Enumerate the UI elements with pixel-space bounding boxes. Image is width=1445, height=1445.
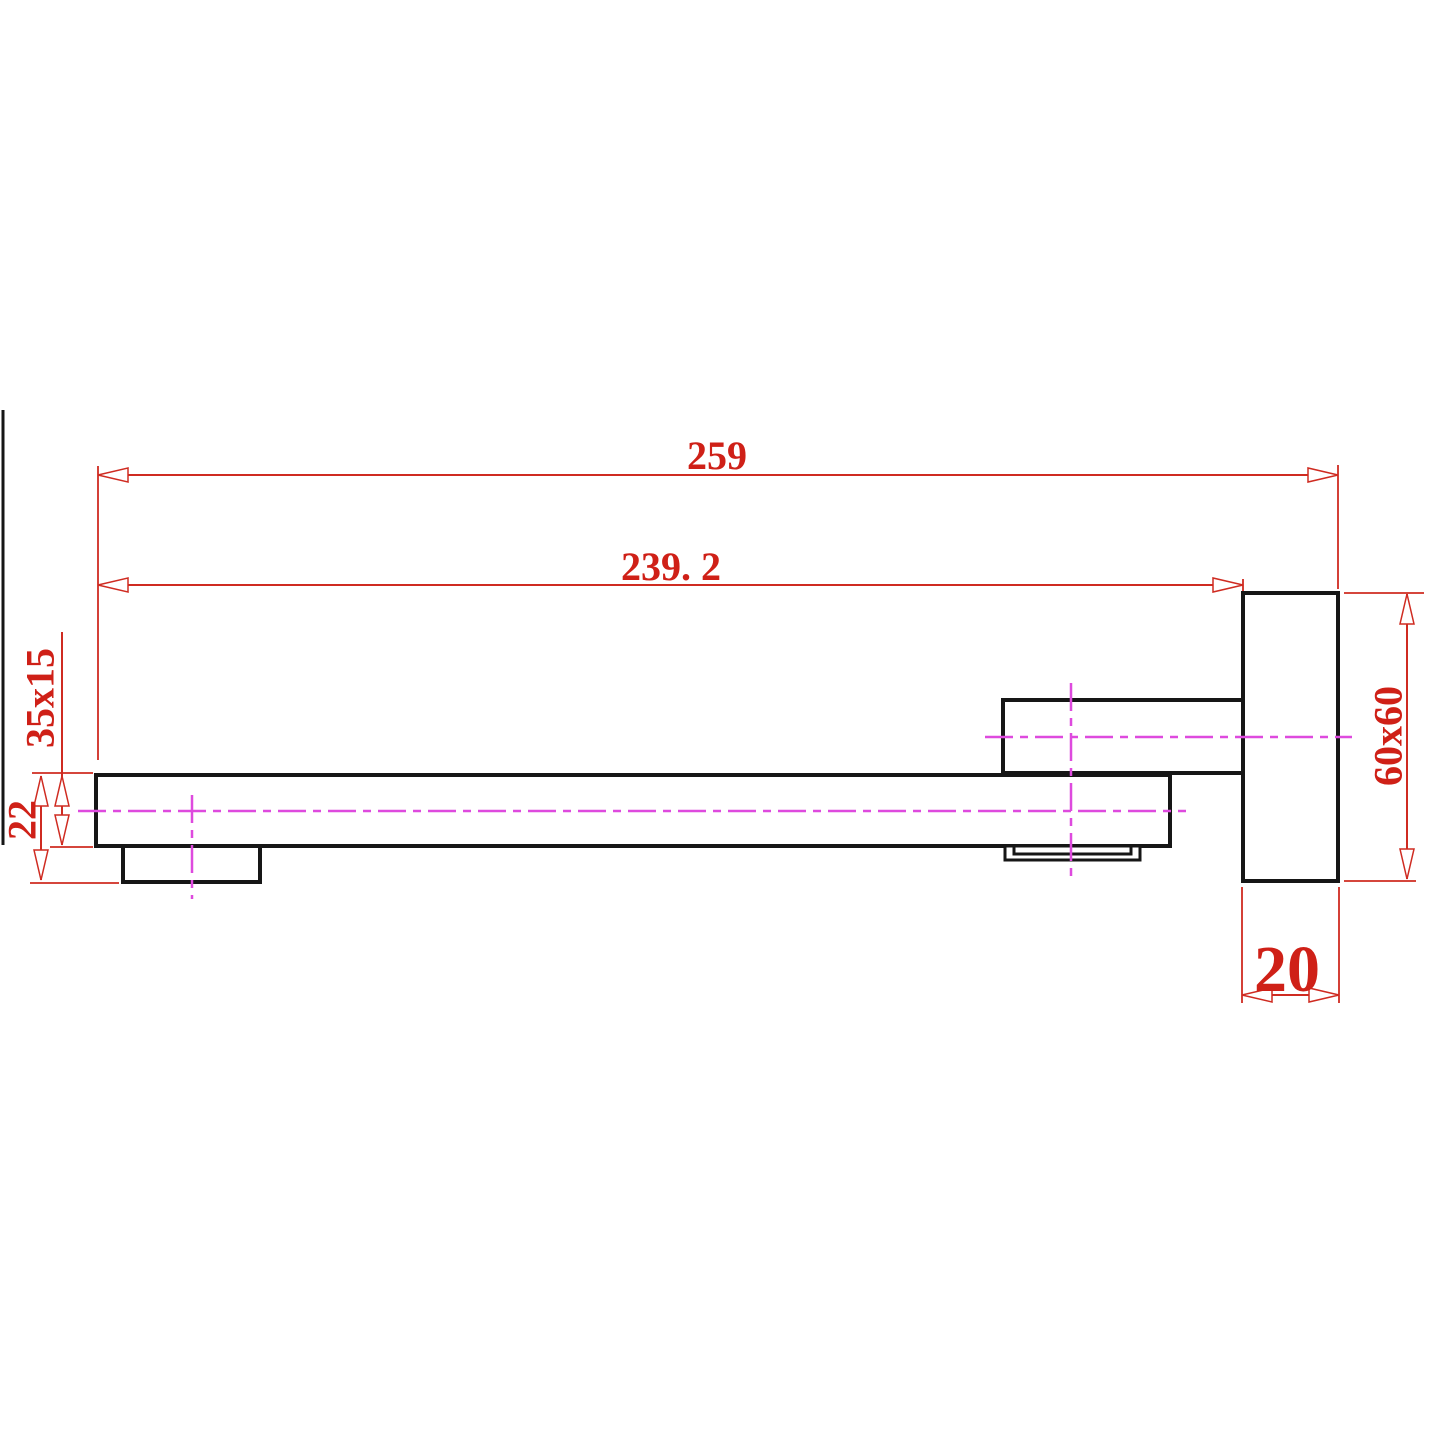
dim-overall-length-label: 259: [687, 433, 747, 478]
arrow-down-icon: [34, 850, 48, 880]
dim-wall-plate-label: 60x60: [1366, 686, 1411, 786]
arrow-up-icon: [55, 776, 69, 806]
arrow-up-icon: [1400, 594, 1414, 624]
dim-arm-section-label: 35x15: [18, 648, 63, 748]
dim-plate-depth: 20: [1242, 887, 1339, 1006]
drawing-page: 259 239. 2 35x15 22: [0, 0, 1445, 1445]
arrow-down-icon: [55, 815, 69, 845]
dim-arm-drop-label: 22: [0, 800, 45, 840]
arrow-down-icon: [1400, 849, 1414, 879]
arrow-right-icon: [1308, 468, 1338, 482]
dim-spout-length-label: 239. 2: [621, 544, 721, 589]
dim-wall-plate: 60x60: [1344, 593, 1424, 881]
arrow-left-icon: [98, 468, 128, 482]
dim-spout-length: 239. 2: [98, 544, 1243, 592]
arrow-left-icon: [98, 578, 128, 592]
outlet-tray-inner-outline: [1014, 846, 1131, 854]
arrow-right-icon: [1213, 578, 1243, 592]
technical-drawing-canvas: 259 239. 2 35x15 22: [0, 0, 1445, 1445]
dim-plate-depth-label: 20: [1254, 933, 1320, 1006]
